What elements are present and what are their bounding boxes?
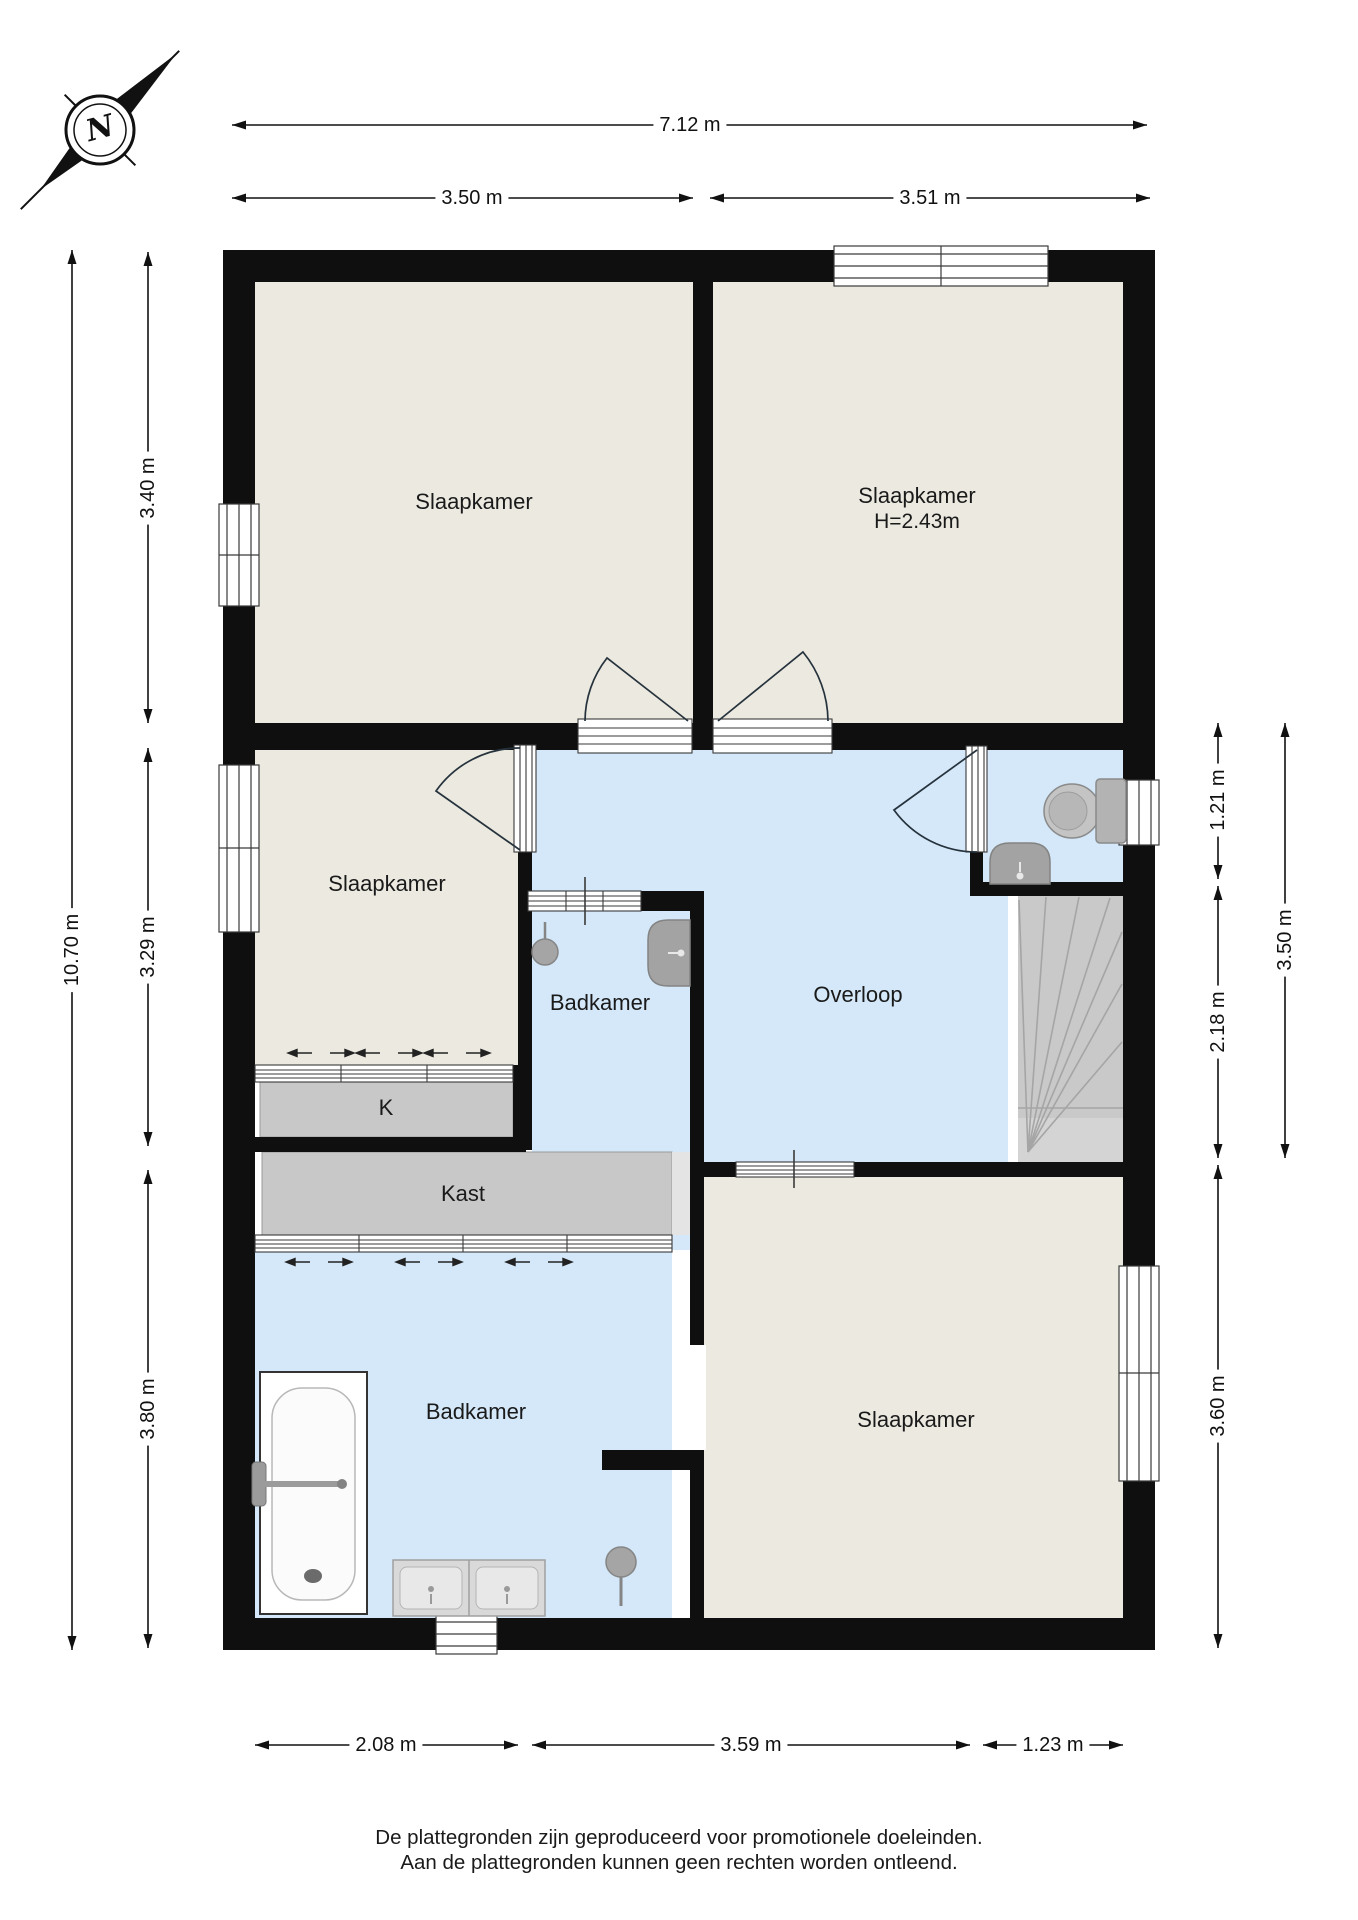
dimension-bottom-mid: 3.59 m [714,1734,787,1756]
tub-drain [304,1569,322,1583]
wall-opening [688,1345,706,1450]
footer-disclaimer-line2: Aan de plattegronden kunnen geen rechten… [0,1851,1358,1875]
dimension-right-mid-total: 3.50 m [1274,903,1296,976]
window-bottom-badkamer [436,1614,497,1654]
window-right-bottom-bedroom [1119,1266,1159,1481]
footer-disclaimer-line1: De plattegronden zijn geproduceerd voor … [0,1826,1358,1850]
dimension-right-stairs: 2.18 m [1207,985,1229,1058]
tub-faucet-handle [252,1462,266,1506]
dimension-right-wc: 1.21 m [1207,763,1229,836]
door-frame-top-right-bedroom [713,719,832,753]
dimension-bottom-right: 1.23 m [1016,1734,1089,1756]
room-label-badkamer-mid: Badkamer [550,990,650,1016]
room-height-note: H=2.43m [874,510,960,534]
dimension-left-top: 3.40 m [137,451,159,524]
window-left-top [219,504,259,606]
toilet [1044,779,1126,843]
window-left-mid [219,765,259,932]
dimension-top-left: 3.50 m [435,187,508,209]
floor-slaapkamer-bottom-right [704,1177,1123,1618]
door-frame-mid-left-bedroom [514,745,536,852]
dimension-right-bottom: 3.60 m [1207,1369,1229,1442]
room-label-slaapkamer-top-right: Slaapkamer [858,483,975,509]
vanity-double-sink [393,1560,545,1616]
floor-plan-drawing [0,0,1358,1920]
mid-badkamer-sink [648,920,690,986]
dimension-bottom-left: 2.08 m [349,1734,422,1756]
dimension-top-right: 3.51 m [893,187,966,209]
stairs [1008,896,1123,1162]
wall-between-top-bedrooms [693,282,713,723]
door-frame-top-left-bedroom [578,719,692,753]
room-label-slaapkamer-bottom-right: Slaapkamer [857,1407,974,1433]
bathtub [252,1372,367,1614]
dimension-top-total: 7.12 m [653,114,726,136]
dimension-left-bottom: 3.80 m [137,1372,159,1445]
room-label-slaapkamer-mid-left: Slaapkamer [328,871,445,897]
room-label-kast: Kast [441,1181,485,1207]
dimension-left-mid: 3.29 m [137,910,159,983]
window-top-bedroom-right [834,246,1048,286]
room-label-closet-k: K [379,1095,394,1121]
sliding-door-closet-k [255,1065,513,1082]
room-label-overloop: Overloop [813,982,902,1008]
wall-outer-left [223,250,255,1650]
room-label-slaapkamer-top-left: Slaapkamer [415,489,532,515]
floor-slaapkamer-mid-left [255,750,518,1065]
room-label-badkamer-bottom: Badkamer [426,1399,526,1425]
wall-outer-bottom [223,1618,1155,1650]
door-frame-wc [966,746,987,852]
wc-sink [990,843,1050,884]
dimension-left-total: 10.70 m [61,908,83,992]
sliding-door-kast [255,1235,672,1252]
floor-plan-page: N Slaapkamer Slaapkamer H=2.43m Slaapkam… [0,0,1358,1920]
